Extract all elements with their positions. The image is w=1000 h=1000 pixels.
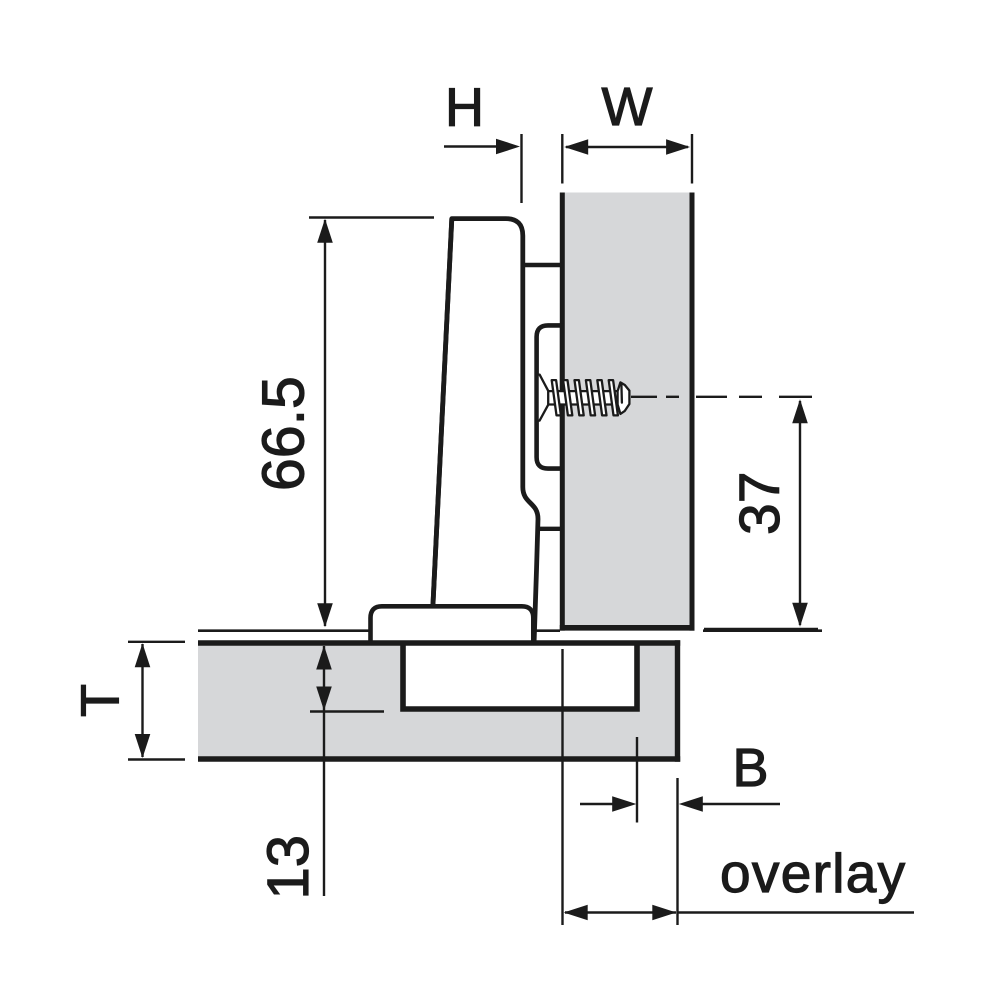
svg-text:B: B xyxy=(733,738,769,798)
svg-text:W: W xyxy=(602,77,653,137)
svg-text:H: H xyxy=(445,78,484,138)
svg-text:T: T xyxy=(71,684,131,717)
svg-text:13: 13 xyxy=(256,835,321,900)
svg-text:37: 37 xyxy=(728,472,792,535)
svg-text:overlay: overlay xyxy=(720,842,906,904)
svg-text:66.5: 66.5 xyxy=(251,376,317,491)
